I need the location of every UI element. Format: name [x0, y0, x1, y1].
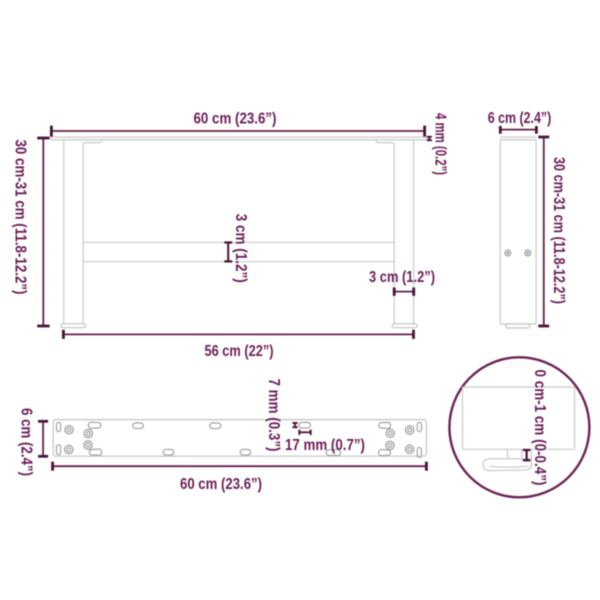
svg-text:4 mm (0.2”): 4 mm (0.2”) [432, 113, 449, 175]
svg-text:60 cm (23.6”): 60 cm (23.6”) [180, 476, 262, 493]
svg-text:60 cm (23.6”): 60 cm (23.6”) [194, 110, 277, 127]
svg-text:30 cm-31 cm (11.8-12.2”): 30 cm-31 cm (11.8-12.2”) [12, 140, 29, 295]
svg-text:30 cm-31 cm (11.8-12.2”): 30 cm-31 cm (11.8-12.2”) [550, 157, 567, 304]
svg-text:3 cm (1.2”): 3 cm (1.2”) [369, 269, 435, 286]
svg-text:0 cm-1 cm (0-0.4”): 0 cm-1 cm (0-0.4”) [531, 370, 548, 486]
svg-text:6 cm (2.4”): 6 cm (2.4”) [18, 408, 35, 476]
svg-text:7 mm (0.3”): 7 mm (0.3”) [265, 379, 282, 452]
svg-text:17 mm (0.7”): 17 mm (0.7”) [285, 437, 365, 454]
svg-text:56 cm (22”): 56 cm (22”) [205, 343, 274, 360]
svg-text:3 cm (1.2”): 3 cm (1.2”) [232, 214, 249, 283]
svg-text:6 cm (2.4”): 6 cm (2.4”) [488, 110, 552, 127]
